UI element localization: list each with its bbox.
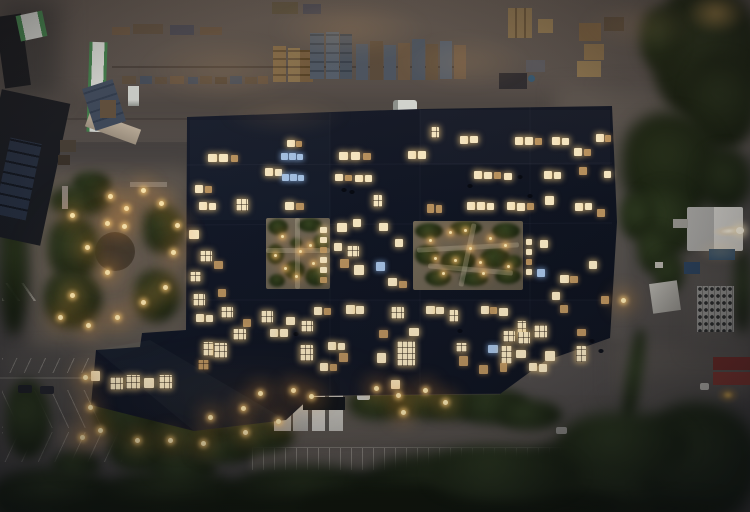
aerial-photo	[0, 0, 750, 512]
plaza-ambient	[20, 170, 200, 350]
light-pool-2	[400, 35, 530, 90]
light-pool-4	[580, 0, 700, 50]
tent-ground-spill	[695, 238, 747, 264]
layer-fx	[0, 0, 750, 512]
light-pool-5	[220, 95, 350, 135]
corner-glow-topright	[686, 0, 746, 34]
yellow-light-bottomright	[716, 386, 740, 404]
south-ambient	[80, 345, 420, 450]
tent-light-core	[736, 227, 744, 234]
